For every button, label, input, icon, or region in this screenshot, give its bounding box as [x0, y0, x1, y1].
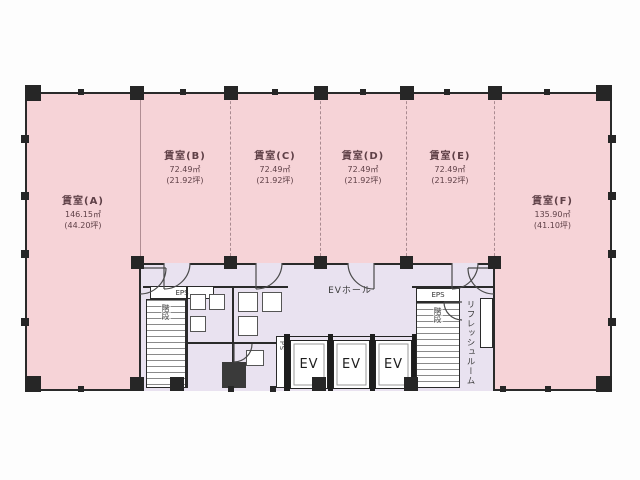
room-A-name: 賃室(A)	[62, 192, 104, 207]
room-E-name: 賃室(E)	[430, 147, 471, 162]
duct-shaft	[222, 362, 246, 388]
elevator-3-label: EV	[384, 357, 403, 372]
room-C: 賃室(C) 72.49㎡ (21.92坪)	[230, 94, 320, 263]
toilet-stall	[238, 316, 258, 336]
room-C-area-tsubo: (21.92坪)	[254, 175, 295, 186]
room-C-name: 賃室(C)	[254, 147, 295, 162]
room-B-area-m2: 72.49㎡	[164, 164, 206, 175]
partition-C-D	[320, 96, 321, 256]
wall-mullion-dot	[608, 250, 616, 258]
room-C-area-m2: 72.49㎡	[254, 164, 295, 175]
column	[130, 377, 144, 391]
room-E-area-tsubo: (21.92坪)	[430, 175, 471, 186]
room-D-area-m2: 72.49㎡	[342, 164, 384, 175]
room-D-area-tsubo: (21.92坪)	[342, 175, 384, 186]
column	[312, 377, 326, 391]
column	[488, 86, 502, 100]
room-F: 賃室(F) 135.90㎡ (41.10坪)	[495, 94, 610, 389]
partition-D-E	[406, 96, 407, 256]
column	[596, 85, 612, 101]
elevator-1-label: EV	[299, 357, 318, 372]
column	[170, 377, 184, 391]
wash-basin	[190, 316, 206, 332]
right-stair-label: 階段	[433, 306, 443, 324]
room-A-area-tsubo: (44.20坪)	[62, 220, 104, 231]
partition-E-F	[494, 96, 495, 256]
refresh-room-closet	[480, 298, 493, 348]
wall-mullion-dot	[545, 386, 551, 392]
right-eps-label: EPS	[417, 289, 459, 301]
ev-door-line	[333, 336, 370, 337]
room-B: 賃室(B) 72.49㎡ (21.92坪)	[140, 94, 230, 263]
left-staircase: 階段	[146, 299, 186, 388]
left-stair-label: 階段	[161, 303, 171, 321]
column	[224, 256, 237, 269]
toilet-partition-h	[186, 342, 288, 344]
ev-door-line	[290, 336, 328, 337]
room-F-area-m2: 135.90㎡	[532, 209, 573, 220]
room-E-area-m2: 72.49㎡	[430, 164, 471, 175]
room-E: 賃室(E) 72.49㎡ (21.92坪)	[406, 94, 494, 263]
wall-mullion-dot	[21, 318, 29, 326]
room-F-area-tsubo: (41.10坪)	[532, 220, 573, 231]
column	[400, 256, 413, 269]
room-A: 賃室(A) 146.15㎡ (44.20坪)	[27, 94, 139, 389]
core-east-wall	[493, 263, 495, 391]
wall-mullion-dot	[608, 318, 616, 326]
toilet-stall	[262, 292, 282, 312]
room-D: 賃室(D) 72.49㎡ (21.92坪)	[320, 94, 406, 263]
wall-mullion-dot	[444, 89, 450, 95]
right-eps-box: EPS	[416, 288, 460, 302]
column	[400, 86, 414, 100]
column	[314, 86, 328, 100]
wall-mullion-dot	[21, 135, 29, 143]
ev-door-line	[375, 336, 412, 337]
corridor-wall-seg	[190, 263, 256, 265]
column	[314, 256, 327, 269]
wall-mullion-dot	[360, 89, 366, 95]
column	[224, 86, 238, 100]
service-fixture	[246, 350, 264, 366]
room-D-name: 賃室(D)	[342, 147, 384, 162]
column	[131, 256, 144, 269]
floorplan-canvas: 賃室(A) 146.15㎡ (44.20坪) 賃室(F) 135.90㎡ (41…	[0, 0, 640, 480]
wall-mullion-dot	[272, 89, 278, 95]
wall-mullion-dot	[608, 192, 616, 200]
left-block-inner-wall-v	[186, 286, 188, 388]
wall-mullion-dot	[78, 89, 84, 95]
column	[25, 85, 41, 101]
wall-mullion-dot	[544, 89, 550, 95]
partition-A-B	[140, 94, 141, 263]
toilet-stall	[238, 292, 258, 312]
wash-basin	[209, 294, 225, 310]
wash-basin	[190, 294, 206, 310]
core-west-wall	[139, 263, 141, 391]
room-F-name: 賃室(F)	[532, 192, 573, 207]
wall-mullion-dot	[21, 250, 29, 258]
column	[130, 86, 144, 100]
room-B-area-tsubo: (21.92坪)	[164, 175, 206, 186]
wall-mullion-dot	[500, 386, 506, 392]
refresh-room-label: リフレッシュルーム	[464, 300, 476, 388]
wall-mullion-dot	[21, 192, 29, 200]
column	[488, 256, 501, 269]
right-staircase: 階段	[416, 302, 460, 388]
partition-B-C	[230, 96, 231, 256]
wall-mullion-dot	[78, 386, 84, 392]
elevator-2-label: EV	[342, 357, 361, 372]
column	[404, 377, 418, 391]
elevator-2: EV	[333, 340, 370, 389]
wall-mullion-dot	[180, 89, 186, 95]
wall-mullion-dot	[270, 386, 276, 392]
wall-mullion-dot	[608, 135, 616, 143]
room-B-name: 賃室(B)	[164, 147, 206, 162]
column	[25, 376, 41, 392]
ev-hall-label: EVホール	[288, 283, 412, 296]
corridor-wall-seg	[374, 263, 452, 265]
room-A-area-m2: 146.15㎡	[62, 209, 104, 220]
column	[596, 376, 612, 392]
wall-mullion-dot	[228, 386, 234, 392]
